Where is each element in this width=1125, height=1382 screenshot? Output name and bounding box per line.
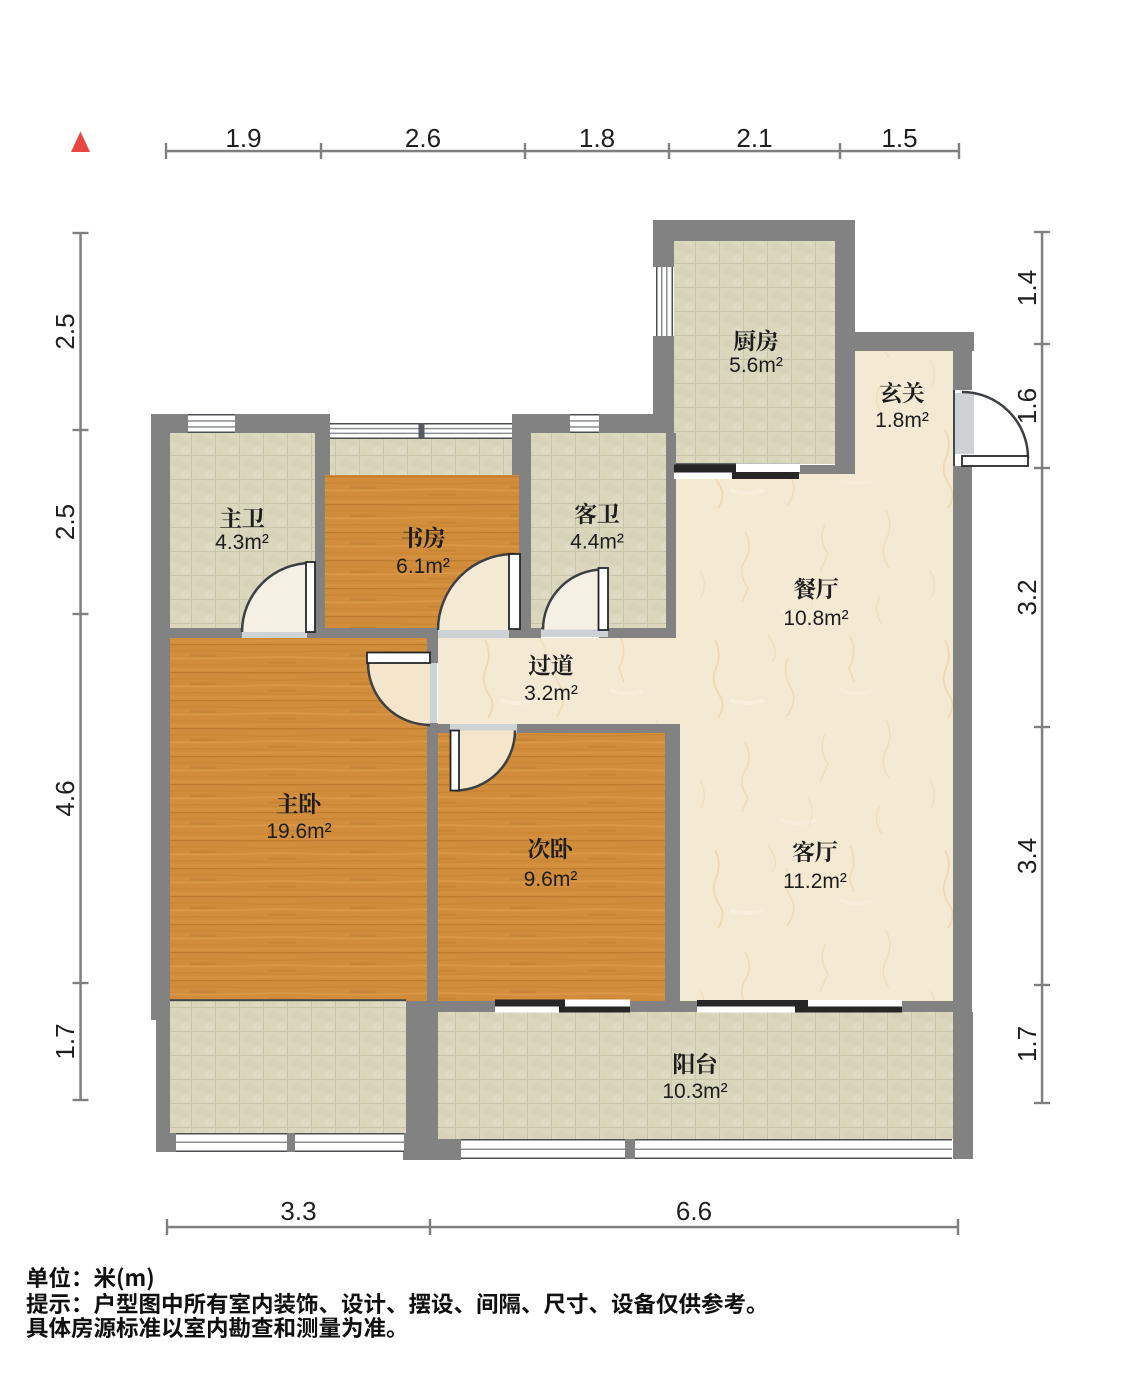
svg-text:5.6m²: 5.6m² [729, 354, 783, 377]
svg-text:9.6m²: 9.6m² [524, 868, 578, 891]
svg-text:10.8m²: 10.8m² [783, 607, 848, 630]
svg-text:4.3m²: 4.3m² [215, 531, 269, 554]
svg-text:1.7: 1.7 [1012, 1026, 1042, 1062]
svg-text:1.9: 1.9 [225, 123, 261, 153]
svg-text:4.4m²: 4.4m² [570, 531, 624, 554]
svg-text:3.3: 3.3 [280, 1196, 316, 1226]
svg-text:10.3m²: 10.3m² [662, 1080, 727, 1103]
svg-text:1.8m²: 1.8m² [875, 409, 929, 432]
svg-text:3.2: 3.2 [1012, 579, 1042, 615]
svg-text:1.4: 1.4 [1012, 270, 1042, 306]
svg-text:2.6: 2.6 [405, 123, 441, 153]
svg-text:3.4: 3.4 [1012, 838, 1042, 874]
svg-text:11.2m²: 11.2m² [783, 870, 847, 893]
svg-text:1.7: 1.7 [50, 1023, 80, 1059]
svg-text:19.6m²: 19.6m² [266, 820, 331, 843]
svg-text:1.8: 1.8 [579, 123, 615, 153]
svg-text:1.6: 1.6 [1012, 388, 1042, 424]
svg-text:4.6: 4.6 [50, 780, 80, 816]
svg-text:6.6: 6.6 [676, 1196, 712, 1226]
svg-text:2.5: 2.5 [50, 313, 80, 349]
svg-text:6.1m²: 6.1m² [396, 555, 450, 578]
svg-text:3.2m²: 3.2m² [524, 682, 578, 705]
svg-text:2.5: 2.5 [50, 504, 80, 540]
svg-text:1.5: 1.5 [881, 123, 917, 153]
svg-text:2.1: 2.1 [736, 123, 772, 153]
